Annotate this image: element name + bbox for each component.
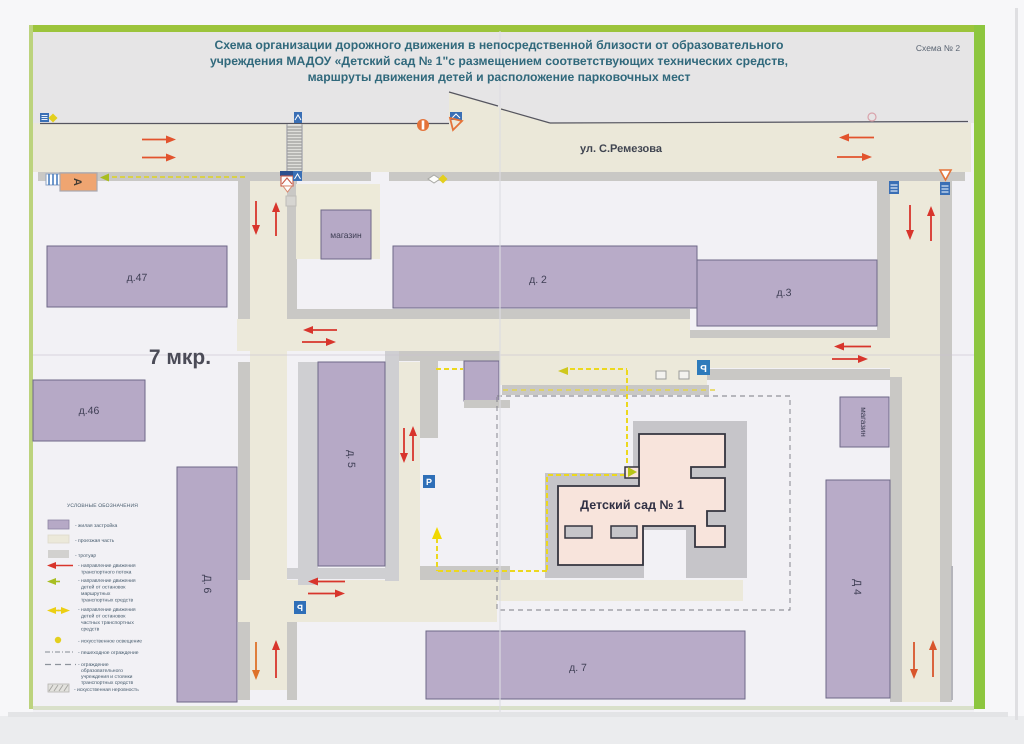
svg-text:детей от остановок: детей от остановок — [81, 614, 126, 620]
svg-text:д.47: д.47 — [127, 272, 148, 284]
svg-text:7 мкр.: 7 мкр. — [149, 346, 211, 369]
svg-text:P: P — [700, 364, 707, 375]
svg-text:д. 2: д. 2 — [529, 274, 547, 286]
svg-text:Схема организации дорожного дв: Схема организации дорожного движения в н… — [214, 38, 783, 52]
svg-text:P: P — [297, 603, 303, 613]
svg-text:P: P — [426, 477, 432, 487]
svg-text:д. 7: д. 7 — [569, 662, 587, 674]
svg-text:средств: средств — [81, 627, 100, 633]
svg-text:маршрутных: маршрутных — [81, 591, 111, 597]
svg-text:магазин: магазин — [859, 407, 868, 437]
svg-text:- тротуар: - тротуар — [75, 553, 96, 559]
svg-text:транспортного потока: транспортного потока — [81, 570, 132, 576]
svg-text:ул. С.Ремезова: ул. С.Ремезова — [580, 143, 663, 155]
svg-text:- направление движения: - направление движения — [78, 607, 136, 613]
svg-text:Д. 6: Д. 6 — [201, 575, 213, 594]
svg-text:частных транспортных: частных транспортных — [81, 620, 134, 626]
svg-text:Детский сад № 1: Детский сад № 1 — [580, 498, 684, 512]
svg-text:д.3: д.3 — [777, 287, 792, 299]
svg-text:- пешеходное ограждение: - пешеходное ограждение — [78, 650, 139, 656]
svg-text:транспортных средств: транспортных средств — [81, 598, 133, 604]
svg-text:магазин: магазин — [330, 230, 362, 240]
svg-text:Схема № 2: Схема № 2 — [916, 43, 960, 53]
svg-text:- направление движения: - направление движения — [78, 563, 136, 569]
svg-text:транспортных средств: транспортных средств — [81, 680, 133, 686]
svg-text:учреждения МАДОУ «Детский сад: учреждения МАДОУ «Детский сад № 1"с разм… — [210, 54, 788, 68]
svg-text:УСЛОВНЫЕ ОБОЗНАЧЕНИЯ: УСЛОВНЫЕ ОБОЗНАЧЕНИЯ — [67, 503, 138, 509]
svg-text:маршруты движения детей и расп: маршруты движения детей и расположение п… — [308, 70, 691, 84]
svg-text:- искусственное освещение: - искусственное освещение — [78, 639, 142, 645]
svg-text:А: А — [71, 178, 83, 186]
svg-text:- проезжая часть: - проезжая часть — [75, 538, 115, 544]
svg-text:Д 4: Д 4 — [851, 579, 863, 595]
svg-text:- жилая застройка: - жилая застройка — [75, 523, 118, 529]
svg-text:детей от остановок: детей от остановок — [81, 585, 126, 591]
svg-text:- искусственная неровность: - искусственная неровность — [74, 687, 139, 693]
svg-text:д. 5: д. 5 — [345, 450, 357, 468]
svg-text:д.46: д.46 — [79, 405, 100, 417]
svg-text:- направление движения: - направление движения — [78, 578, 136, 584]
